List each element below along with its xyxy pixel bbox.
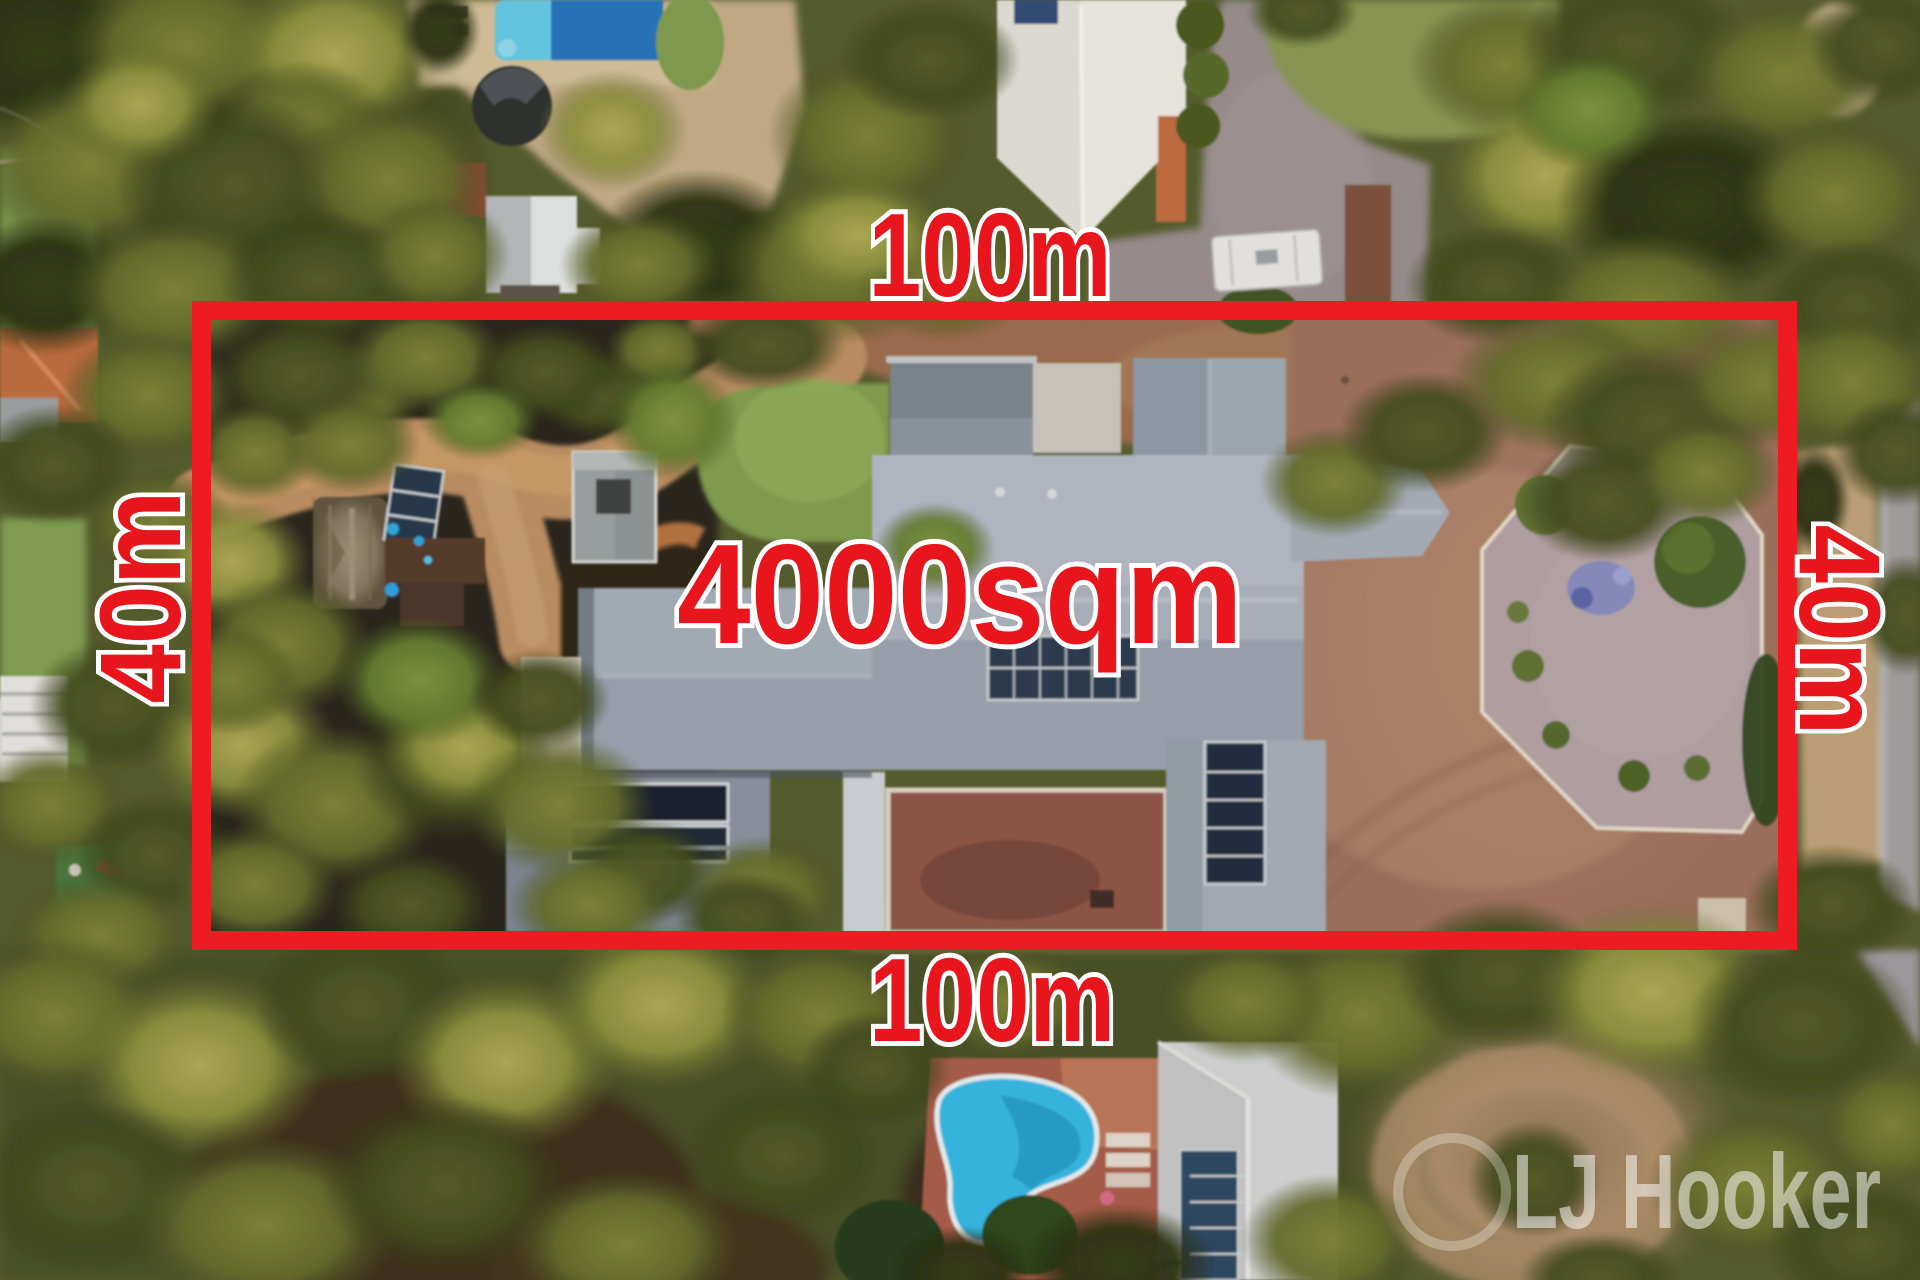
svg-text:100m: 100m <box>869 934 1115 1067</box>
svg-text:LJ Hooker: LJ Hooker <box>1512 1133 1881 1251</box>
svg-text:4000sqm: 4000sqm <box>677 515 1243 674</box>
svg-text:100m: 100m <box>869 189 1112 322</box>
svg-text:40m: 40m <box>77 491 205 704</box>
svg-text:40m: 40m <box>1775 525 1903 736</box>
